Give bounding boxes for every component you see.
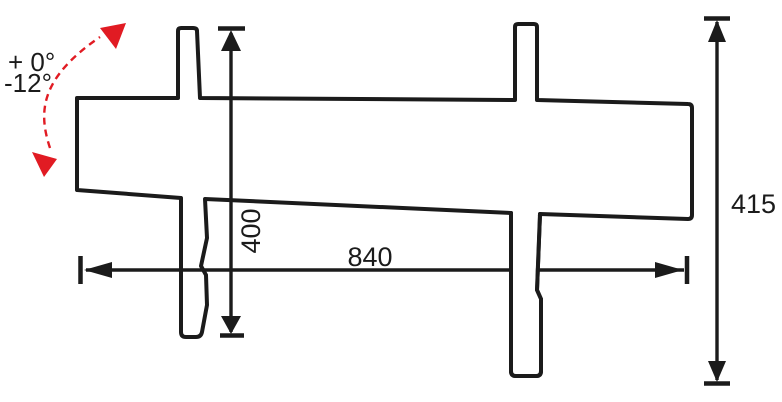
prong-overlay — [511, 213, 541, 376]
dim-840-label: 840 — [347, 242, 392, 272]
dim-840-arrow-left-icon — [84, 262, 112, 278]
dimension-840: 840 — [81, 242, 688, 284]
dim-415-arrow-down-icon — [708, 361, 726, 382]
product-outline — [77, 24, 692, 376]
tilt-arrow-up-icon — [100, 23, 126, 49]
dim-415-arrow-up-icon — [708, 20, 726, 42]
mount-profile-shape — [77, 24, 692, 376]
dim-840-arrow-right-icon — [655, 262, 683, 278]
tilt-down-label: -12° — [4, 68, 52, 98]
dimension-415: 415 — [704, 19, 776, 384]
dim-400-label: 400 — [236, 208, 266, 253]
tilt-arrow-down-icon — [32, 152, 57, 177]
diagram-canvas: 840 400 415 + — [0, 0, 782, 402]
dim-400-arrow-up-icon — [221, 30, 241, 51]
dim-415-label: 415 — [731, 189, 776, 219]
technical-drawing: 840 400 415 + — [0, 0, 782, 402]
dim-400-arrow-down-icon — [221, 316, 241, 334]
prong-overlay-fill — [513, 214, 539, 374]
